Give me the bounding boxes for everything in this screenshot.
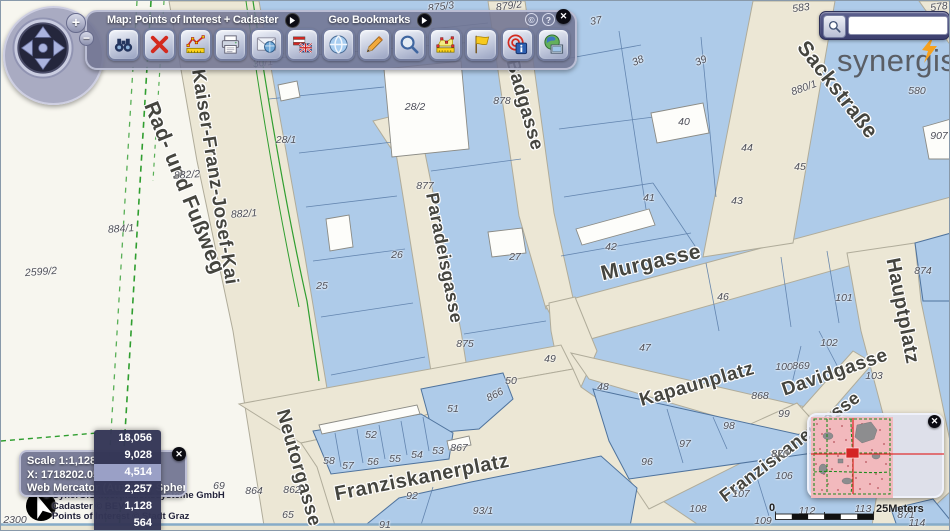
scale-option[interactable]: 4,514 bbox=[94, 464, 161, 481]
pan-globe-button[interactable] bbox=[322, 28, 355, 61]
clear-selection-button[interactable] bbox=[143, 28, 176, 61]
pan-compass[interactable] bbox=[12, 17, 74, 79]
zoom-out-button[interactable]: − bbox=[79, 31, 94, 46]
measure-profile-button[interactable] bbox=[179, 28, 212, 61]
toolbar-close-button[interactable]: ✕ bbox=[556, 9, 571, 24]
binoculars-icon bbox=[112, 33, 135, 56]
identify-button[interactable] bbox=[501, 28, 534, 61]
scalebar-distance-label: 25Meters bbox=[876, 503, 924, 515]
search-box bbox=[819, 11, 950, 40]
toolbar-title-row: Map: Points of Interest + Cadaster Geo B… bbox=[107, 12, 432, 28]
magnifier-icon bbox=[398, 33, 421, 56]
map-menu-arrow-button[interactable] bbox=[285, 13, 300, 28]
overview-close-button[interactable]: ✕ bbox=[928, 415, 941, 428]
geo-bookmarks-arrow-button[interactable] bbox=[417, 13, 432, 28]
building bbox=[488, 228, 526, 257]
area-ruler-icon bbox=[434, 33, 457, 56]
flags-icon bbox=[291, 33, 314, 56]
geo-bookmarks-label: Geo Bookmarks bbox=[328, 14, 410, 26]
draw-button[interactable] bbox=[358, 28, 391, 61]
globe-icon bbox=[327, 33, 350, 56]
language-button[interactable] bbox=[286, 28, 319, 61]
print-button[interactable] bbox=[214, 28, 247, 61]
help-button[interactable]: ? bbox=[542, 13, 555, 26]
scale-option[interactable]: 9,028 bbox=[94, 447, 161, 464]
flag-icon bbox=[470, 33, 493, 56]
overview-map-panel[interactable] bbox=[807, 413, 944, 498]
zoom-in-button[interactable]: + bbox=[66, 13, 86, 33]
scale-option[interactable]: 18,056 bbox=[94, 430, 161, 447]
overview-extent-box[interactable] bbox=[846, 448, 859, 458]
red-x-icon bbox=[148, 33, 171, 56]
find-button[interactable] bbox=[107, 28, 140, 61]
measure-area-button[interactable] bbox=[429, 28, 462, 61]
building bbox=[278, 81, 300, 101]
right-arrow-icon bbox=[421, 17, 428, 24]
zoom-search-button[interactable] bbox=[393, 28, 426, 61]
scale-dropdown-menu: 18,0569,0284,5142,2571,128564 bbox=[94, 430, 161, 531]
building bbox=[326, 215, 353, 251]
pencil-icon bbox=[363, 33, 386, 56]
printer-icon bbox=[219, 33, 242, 56]
overview-map bbox=[811, 417, 944, 498]
flag-button[interactable] bbox=[465, 28, 498, 61]
scalebar bbox=[775, 511, 876, 523]
copyright-button[interactable]: © bbox=[525, 13, 538, 26]
map-menu-label: Map: Points of Interest + Cadaster bbox=[107, 14, 278, 26]
envelope-globe-icon bbox=[255, 33, 278, 56]
right-arrow-icon bbox=[289, 17, 296, 24]
measure-line-icon bbox=[184, 33, 207, 56]
globe-document-icon bbox=[542, 33, 565, 56]
status-close-button[interactable]: ✕ bbox=[172, 447, 186, 461]
search-input[interactable] bbox=[848, 16, 948, 35]
scale-option[interactable]: 1,128 bbox=[94, 498, 161, 515]
scale-option[interactable]: 2,257 bbox=[94, 481, 161, 498]
building bbox=[384, 61, 469, 157]
map-application: Rad- und FußwegKaiser-Franz-Josef-KaiBad… bbox=[0, 0, 950, 531]
scale-option[interactable]: 564 bbox=[94, 515, 161, 531]
pan-center-icon[interactable] bbox=[39, 44, 48, 53]
map-tip-button[interactable] bbox=[537, 28, 570, 61]
search-icon bbox=[827, 19, 842, 34]
identify-target-icon bbox=[506, 33, 529, 56]
send-map-button[interactable] bbox=[250, 28, 283, 61]
search-button[interactable] bbox=[823, 15, 846, 38]
